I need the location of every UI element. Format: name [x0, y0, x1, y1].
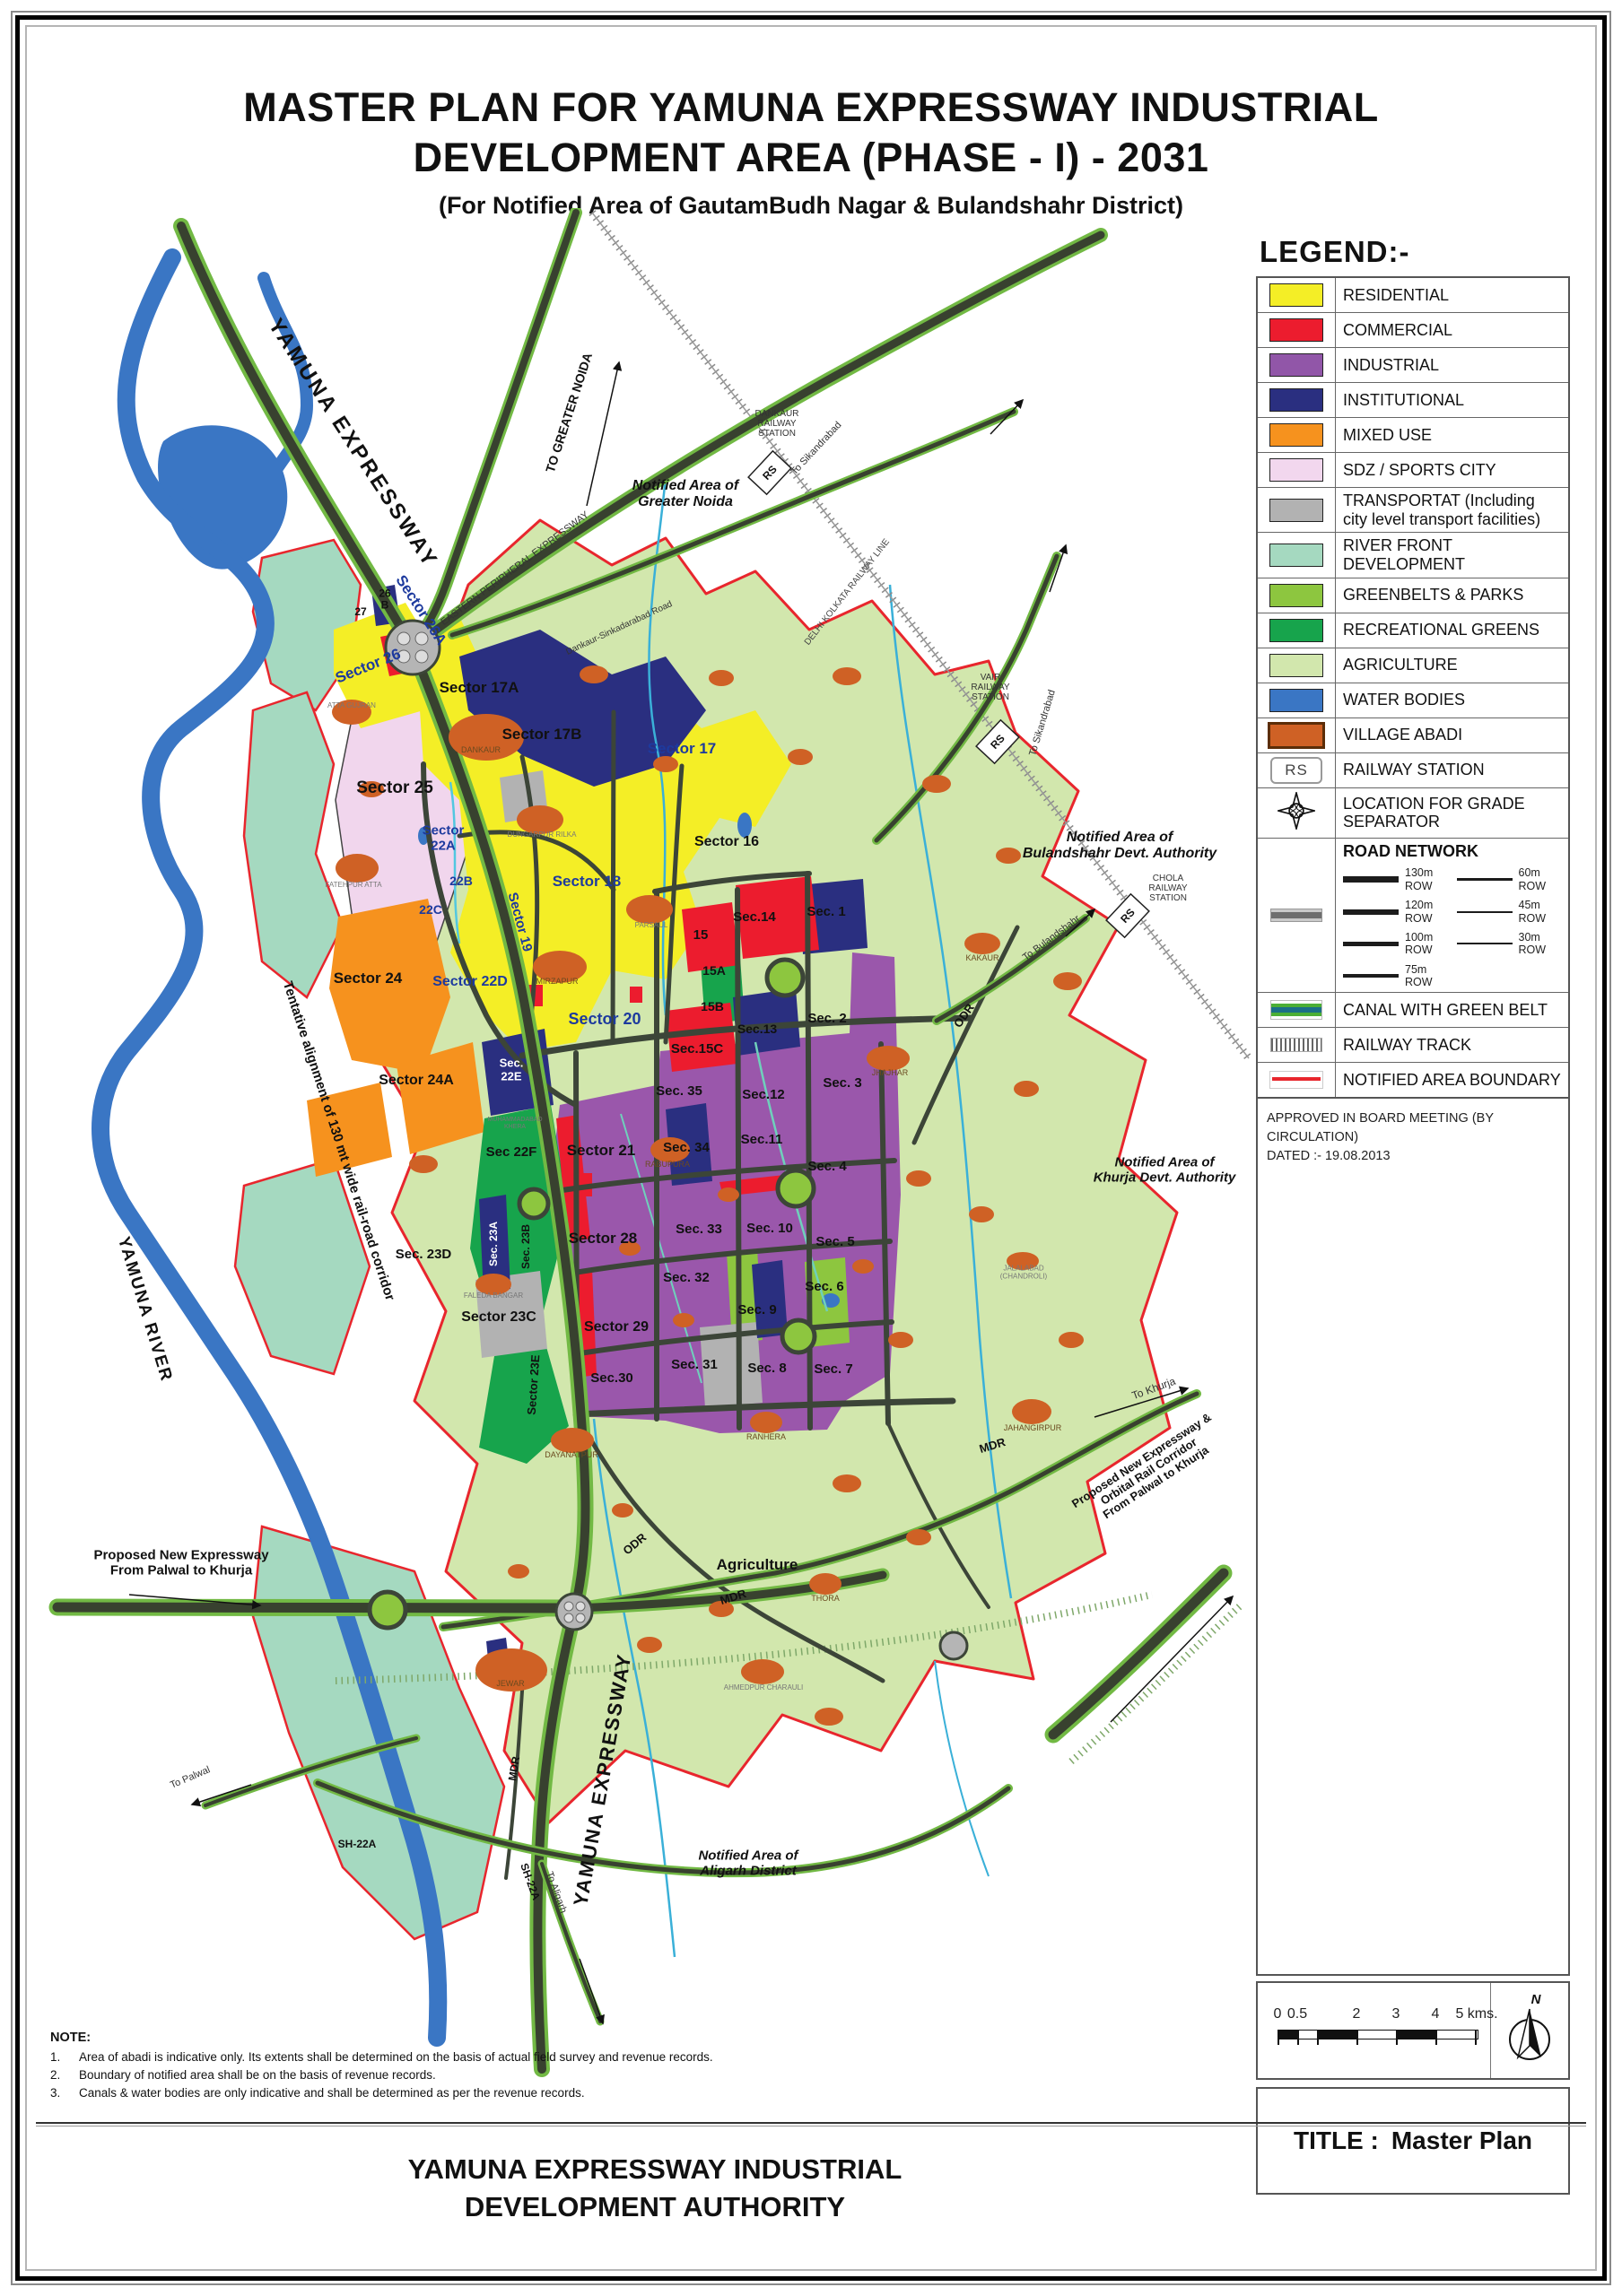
boundary-icon [1269, 1071, 1323, 1089]
scale-label: 2 [1353, 2006, 1361, 2022]
map-label-sector-16: Sector 16 [694, 834, 759, 849]
legend-color-swatch [1268, 722, 1325, 749]
scale-label: 5 kms. [1455, 2006, 1497, 2022]
road-row-line [1343, 876, 1399, 883]
note-item-text: Canals & water bodies are only indicativ… [79, 2084, 585, 2102]
map-label-sec-30: Sec.30 [590, 1370, 633, 1386]
map-label-sec-15c: Sec.15C [671, 1041, 724, 1057]
road-row-label: 120m ROW [1405, 899, 1448, 925]
legend-row-village-abadi: VILLAGE ABADI [1258, 718, 1568, 753]
legend-item-label: RAILWAY TRACK [1343, 1036, 1561, 1055]
legend-item-label: ROAD NETWORK [1343, 842, 1561, 861]
note-item: 1.Area of abadi is indicative only. Its … [50, 2048, 804, 2066]
map-label-sec-8: Sec. 8 [747, 1361, 786, 1376]
canal-icon [1270, 1000, 1322, 1020]
map-label-notified-area-khurja: Notified Area ofKhurja Devt. Authority [1094, 1154, 1236, 1185]
note-items: 1.Area of abadi is indicative only. Its … [50, 2048, 804, 2103]
map-label-sector-23b: Sec. 23B [519, 1224, 532, 1269]
map-label-chola-railway-station: CHOLARAILWAYSTATION [1148, 873, 1187, 902]
map-label-sec-10: Sec. 10 [746, 1221, 793, 1236]
road-row-120m-row: 120m ROW [1343, 899, 1448, 925]
map-label-village-jewar: JEWAR [496, 1679, 525, 1688]
road-row-45m-row: 45m ROW [1457, 899, 1562, 925]
legend-item-label: SDZ / SPORTS CITY [1343, 461, 1561, 480]
map-label-proposed-new-expressway-left: Proposed New ExpresswayFrom Palwal to Kh… [93, 1547, 269, 1578]
map-label-village-dankaur: DANKAUR [461, 745, 501, 754]
map-label-sec-31: Sec. 31 [671, 1357, 718, 1372]
map-label-village-mirzapur: MIRZAPUR [536, 977, 580, 986]
legend-row-industrial: INDUSTRIAL [1258, 348, 1568, 383]
map-label-village-atta-gujran: ATTA GUJRAN [327, 701, 376, 709]
village-abadi-blob [673, 1313, 694, 1327]
map-label-village-thora: THORA [811, 1594, 840, 1603]
legend-panel: LEGEND:- RESIDENTIALCOMMERCIALINDUSTRIAL… [1256, 235, 1570, 2195]
map-label-village-parsaul: PARSAUL [635, 921, 668, 929]
village-abadi-blob [815, 1708, 843, 1726]
master-plan-map: YAMUNA EXPRESSWAYSector 26ATO GREATER NO… [38, 208, 1251, 2126]
legend-row-residential: RESIDENTIAL [1258, 278, 1568, 313]
legend-table: RESIDENTIALCOMMERCIALINDUSTRIALINSTITUTI… [1256, 276, 1570, 1099]
scale-label: 4 [1432, 2006, 1440, 2022]
map-label-to-sikandrabad-2: To Sikandrabad [1027, 689, 1058, 758]
road-row-label: 130m ROW [1405, 866, 1448, 892]
scale-box: 00.52345 kms. N [1256, 1981, 1570, 2080]
road-network-rows: 130m ROW60m ROW120m ROW45m ROW100m ROW30… [1343, 866, 1561, 988]
map-label-sec-32: Sec. 32 [663, 1270, 710, 1285]
village-abadi-blob [741, 1659, 784, 1684]
map-label-village-rabupura: RABUPURA [645, 1160, 690, 1169]
road-row-label: 45m ROW [1519, 899, 1562, 925]
legend-row-water-bodies: WATER BODIES [1258, 683, 1568, 718]
grade-separator-icon [556, 1594, 592, 1630]
map-label-sector-15a: 15A [702, 963, 726, 978]
legend-item-label: GREENBELTS & PARKS [1343, 586, 1561, 604]
village-abadi-blob [409, 1155, 438, 1173]
village-abadi-blob [964, 933, 1000, 954]
map-label-sec-3: Sec. 3 [823, 1075, 861, 1091]
village-abadi-blob [867, 1046, 910, 1071]
map-label-sector-25: Sector 25 [356, 778, 433, 797]
map-label-village-ahmedpur-charauli: AHMEDPUR CHARAULI [724, 1683, 803, 1692]
legend-row-railway-station: RSRAILWAY STATION [1258, 753, 1568, 788]
legend-color-swatch [1269, 619, 1323, 642]
map-label-village-kakaur: KAKAUR [965, 953, 999, 962]
village-abadi-blob [580, 665, 608, 683]
village-abadi-blob [852, 1259, 874, 1274]
map-label-sector-27: 27 [354, 605, 367, 618]
road-row-line [1343, 909, 1399, 915]
map-label-sector-15: 15 [693, 927, 709, 943]
title-line-1: MASTER PLAN FOR YAMUNA EXPRESSWAY INDUST… [0, 83, 1622, 133]
railway-station-icon: RS [1270, 757, 1322, 784]
map-label-dankaur-railway-station: DANKAURRAILWAYSTATION [755, 408, 799, 438]
north-arrow-cell: N [1491, 1983, 1568, 2078]
village-abadi-blob [922, 775, 951, 793]
legend-color-swatch [1269, 423, 1323, 447]
legend-row-road-network: ROAD NETWORK130m ROW60m ROW120m ROW45m R… [1258, 839, 1568, 994]
map-label-sector-22c: 22C [419, 902, 442, 917]
legend-color-swatch [1269, 388, 1323, 412]
legend-color-swatch [1269, 353, 1323, 377]
map-label-sector-17a: Sector 17A [440, 679, 519, 696]
map-label-sector-18: Sector 18 [553, 873, 622, 890]
map-label-sec-9: Sec. 9 [737, 1302, 776, 1318]
note-item: 3.Canals & water bodies are only indicat… [50, 2084, 804, 2102]
legend-row-sdz-sports-city: SDZ / SPORTS CITY [1258, 453, 1568, 488]
map-label-sec-33: Sec. 33 [676, 1222, 722, 1237]
map-label-village-jahangirpur: JAHANGIRPUR [1004, 1423, 1062, 1432]
legend-item-label: NOTIFIED AREA BOUNDARY [1343, 1071, 1561, 1090]
village-abadi-blob [508, 1564, 529, 1578]
road-row-130m-row: 130m ROW [1343, 866, 1448, 892]
village-abadi-blob [788, 749, 813, 765]
village-abadi-blob [1059, 1332, 1084, 1348]
legend-item-label: INDUSTRIAL [1343, 356, 1561, 375]
map-label-sector-23c: Sector 23C [461, 1309, 536, 1325]
map-title-block: MASTER PLAN FOR YAMUNA EXPRESSWAY INDUST… [0, 83, 1622, 221]
footer-divider [36, 2122, 1586, 2126]
map-label-sec-13: Sec.13 [737, 1022, 778, 1036]
map-label-sec-7: Sec. 7 [814, 1361, 852, 1377]
map-label-to-greater-noida: TO GREATER NOIDA [543, 351, 595, 474]
authority-line-1: YAMUNA EXPRESSWAY INDUSTRIAL [215, 2151, 1094, 2188]
map-label-sec-6: Sec. 6 [805, 1279, 843, 1294]
legend-item-label: LOCATION FOR GRADE SEPARATOR [1343, 795, 1561, 831]
map-label-sec-1: Sec. 1 [807, 904, 845, 919]
legend-row-location-for-grade-separator: LOCATION FOR GRADE SEPARATOR [1258, 788, 1568, 839]
note-heading: NOTE: [50, 2029, 804, 2048]
village-abadi-blob [996, 848, 1021, 864]
village-abadi-blob [653, 756, 678, 772]
map-label-village-dayanatpur: DAYANATPUR [545, 1450, 598, 1459]
legend-item-label: AGRICULTURE [1343, 656, 1561, 674]
road-row-line [1457, 943, 1513, 944]
map-label-agriculture-label: Agriculture [717, 1556, 798, 1573]
legend-item-label: COMMERCIAL [1343, 321, 1561, 340]
map-label-sector-24: Sector 24 [334, 970, 403, 987]
map-label-sector-29: Sector 29 [584, 1319, 649, 1335]
legend-item-label: VILLAGE ABADI [1343, 726, 1561, 744]
road-row-label: 100m ROW [1405, 931, 1448, 957]
legend-item-label: RECREATIONAL GREENS [1343, 621, 1561, 639]
map-label-sector-22d: Sector 22D [432, 974, 508, 989]
legend-row-greenbelts-parks: GREENBELTS & PARKS [1258, 578, 1568, 613]
legend-item-label: CANAL WITH GREEN BELT [1343, 1001, 1561, 1020]
map-label-sec-35: Sec. 35 [656, 1083, 702, 1099]
approval-note: APPROVED IN BOARD MEETING (BY CIRCULATIO… [1256, 1099, 1570, 1976]
map-label-sec-4: Sec. 4 [807, 1159, 847, 1174]
title-line-2: DEVELOPMENT AREA (PHASE - I) - 2031 [0, 133, 1622, 183]
village-abadi-blob [637, 1637, 662, 1653]
authority-line-2: DEVELOPMENT AUTHORITY [215, 2188, 1094, 2226]
approval-line-2: DATED :- 19.08.2013 [1267, 1147, 1559, 1166]
legend-heading: LEGEND:- [1260, 235, 1570, 269]
legend-row-mixed-use: MIXED USE [1258, 418, 1568, 453]
scale-label: 0.5 [1287, 2006, 1307, 2022]
map-label-sector-24a: Sector 24A [379, 1073, 454, 1088]
footer-authority: YAMUNA EXPRESSWAY INDUSTRIAL DEVELOPMENT… [215, 2151, 1094, 2226]
legend-row-commercial: COMMERCIAL [1258, 313, 1568, 348]
map-label-sec-14: Sec.14 [733, 909, 776, 925]
village-abadi-blob [750, 1412, 782, 1433]
village-abadi-blob [833, 667, 861, 685]
scale-label: 3 [1392, 2006, 1400, 2022]
legend-item-label: WATER BODIES [1343, 691, 1561, 709]
map-label-sec-34: Sec. 34 [663, 1140, 710, 1155]
map-label-sector-17: Sector 17 [648, 740, 717, 757]
grade-separator-icon [1278, 792, 1315, 834]
village-abadi-blob [551, 1428, 594, 1453]
village-abadi-blob [626, 895, 673, 924]
scale-label: 0 [1274, 2006, 1282, 2022]
road-row-75m-row: 75m ROW [1343, 963, 1448, 989]
sheet-title-label: TITLE : [1294, 2126, 1379, 2155]
note-block: NOTE: 1.Area of abadi is indicative only… [50, 2029, 804, 2103]
road-row-label: 75m ROW [1405, 963, 1448, 989]
legend-row-notified-area-boundary: NOTIFIED AREA BOUNDARY [1258, 1063, 1568, 1097]
map-label-village-fatehpur-atta: FATEHPUR ATTA [325, 881, 382, 889]
map-canvas: YAMUNA EXPRESSWAYSector 26ATO GREATER NO… [38, 208, 1251, 2126]
map-label-sector-23d: Sec. 23D [396, 1247, 452, 1262]
grade-separator-icon [940, 1632, 967, 1659]
legend-color-swatch [1269, 318, 1323, 342]
north-arrow-icon: N [1496, 1991, 1563, 2070]
legend-color-swatch [1269, 689, 1323, 712]
road-row-60m-row: 60m ROW [1457, 866, 1562, 892]
map-label-sector-21: Sector 21 [567, 1142, 636, 1159]
village-abadi-blob [888, 1332, 913, 1348]
map-label-notified-area-aligarh: Notified Area ofAligarh District [698, 1848, 799, 1878]
legend-row-transportat-including-city-level-transport-facilities: TRANSPORTAT (Including city level transp… [1258, 488, 1568, 533]
legend-color-swatch [1269, 584, 1323, 607]
legend-color-swatch [1269, 458, 1323, 482]
map-label-to-sikandrabad-1: To Sikandrabad [789, 420, 844, 477]
road-row-line [1457, 878, 1513, 881]
map-label-sector-28: Sector 28 [569, 1230, 638, 1247]
map-label-village-jhajhar: JHAJHAR [872, 1068, 909, 1077]
village-abadi-blob [906, 1170, 931, 1187]
scale-bar-strip [1278, 2030, 1478, 2039]
map-label-sector-23a: Sec. 23A [487, 1222, 500, 1266]
legend-color-swatch [1269, 499, 1323, 522]
map-label-to-palwal: To Palwal [169, 1764, 212, 1790]
map-label-sector-22e: Sec.22E [500, 1056, 524, 1083]
road-row-100m-row: 100m ROW [1343, 931, 1448, 957]
village-abadi-blob [833, 1474, 861, 1492]
legend-color-swatch [1269, 544, 1323, 567]
road-row-line [1343, 974, 1399, 978]
village-abadi-blob [1012, 1399, 1051, 1424]
village-abadi-blob [612, 1503, 633, 1518]
approval-line-1: APPROVED IN BOARD MEETING (BY CIRCULATIO… [1267, 1109, 1559, 1147]
map-label-sector-15b: 15B [701, 999, 724, 1013]
village-abadi-blob [336, 854, 379, 883]
sheet-title-box: TITLE : Master Plan [1256, 2087, 1570, 2195]
note-item-text: Boundary of notified area shall be on th… [79, 2066, 436, 2084]
map-label-sector-17b: Sector 17B [502, 726, 582, 743]
map-label-sector-22b: 22B [449, 874, 473, 888]
roadnet-icon [1270, 909, 1322, 922]
legend-row-railway-track: RAILWAY TRACK [1258, 1028, 1568, 1063]
note-item: 2.Boundary of notified area shall be on … [50, 2066, 804, 2084]
map-label-sector-20: Sector 20 [568, 1010, 641, 1028]
legend-item-label: TRANSPORTAT (Including city level transp… [1343, 491, 1561, 528]
village-abadi-blob [809, 1573, 842, 1595]
map-label-village-faleda-bangar: FALEDA BANGAR [464, 1291, 523, 1300]
sheet-title-value: Master Plan [1391, 2126, 1532, 2155]
note-item-text: Area of abadi is indicative only. Its ex… [79, 2048, 713, 2066]
map-label-village-jalalabad: JALALABAD(CHANDROLI) [1000, 1264, 1048, 1280]
legend-item-label: RAILWAY STATION [1343, 761, 1561, 779]
scale-bar-cell: 00.52345 kms. [1258, 1983, 1491, 2078]
map-label-sec-5: Sec. 5 [815, 1234, 854, 1249]
village-abadi-blob [1014, 1081, 1039, 1097]
legend-row-recreational-greens: RECREATIONAL GREENS [1258, 613, 1568, 648]
legend-row-river-front-development: RIVER FRONT DEVELOPMENT [1258, 533, 1568, 578]
map-label-village-dungarpur-rilka: DUNGARPUR RILKA [508, 831, 578, 839]
road-row-line [1457, 911, 1513, 913]
rail-icon [1270, 1038, 1322, 1052]
legend-row-agriculture: AGRICULTURE [1258, 648, 1568, 683]
road-row-30m-row: 30m ROW [1457, 931, 1562, 957]
map-label-sector-22f: Sec 22F [486, 1144, 537, 1160]
map-label-village-ranhera: RANHERA [746, 1432, 786, 1441]
village-abadi-blob [709, 670, 734, 686]
village-abadi-blob [906, 1529, 931, 1545]
legend-row-institutional: INSTITUTIONAL [1258, 383, 1568, 418]
map-label-sec-11: Sec.11 [741, 1132, 783, 1147]
legend-item-label: RIVER FRONT DEVELOPMENT [1343, 536, 1561, 573]
map-label-sec-12: Sec.12 [742, 1087, 785, 1102]
legend-item-label: MIXED USE [1343, 426, 1561, 445]
svg-text:N: N [1531, 1992, 1542, 2007]
map-label-sec-2: Sec. 2 [807, 1011, 846, 1026]
village-abadi-blob [969, 1206, 994, 1222]
legend-color-swatch [1269, 283, 1323, 307]
legend-item-label: INSTITUTIONAL [1343, 391, 1561, 410]
legend-row-canal-with-green-belt: CANAL WITH GREEN BELT [1258, 993, 1568, 1028]
map-label-notified-area-greater-noida: Notified Area ofGreater Noida [632, 478, 740, 509]
village-abadi-blob [718, 1187, 739, 1202]
road-row-label: 60m ROW [1519, 866, 1562, 892]
legend-color-swatch [1269, 654, 1323, 677]
village-abadi-blob [1053, 972, 1082, 990]
map-label-sh-22a-left: SH-22A [338, 1838, 377, 1850]
road-row-line [1343, 942, 1399, 946]
legend-item-label: RESIDENTIAL [1343, 286, 1561, 305]
road-row-label: 30m ROW [1519, 931, 1562, 957]
